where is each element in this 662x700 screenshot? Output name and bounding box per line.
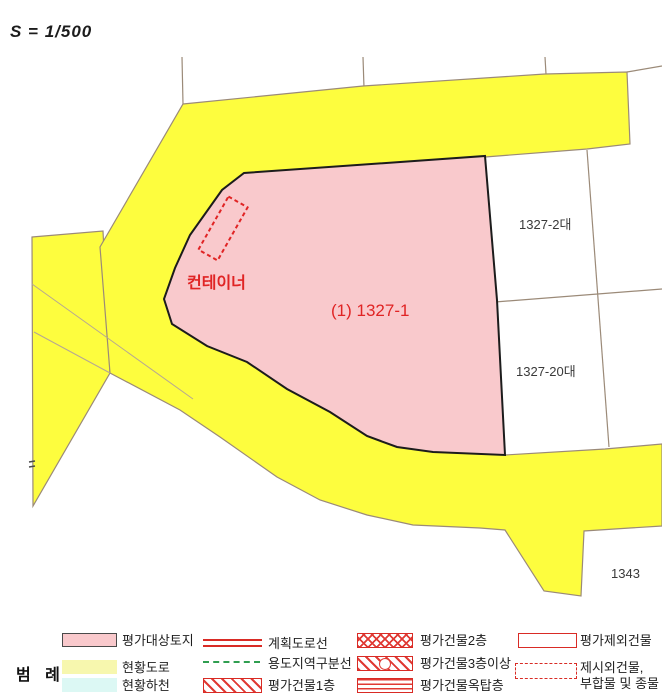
tick-mark bbox=[29, 461, 35, 462]
parcel-20-label: 1327-20대 bbox=[516, 364, 576, 379]
legend-swatch-existing-road bbox=[62, 660, 117, 674]
parcel-line bbox=[495, 289, 662, 302]
legend-label-unlisted-building-line2: 부합물 및 종물 bbox=[580, 676, 659, 691]
legend-swatch-subject-land bbox=[62, 633, 117, 647]
legend-label-excluded-building: 평가제외건물 bbox=[580, 633, 652, 648]
legend-label-building-2f: 평가건물2층 bbox=[420, 633, 487, 648]
subject-parcel-label: (1) 1327-1 bbox=[331, 301, 409, 320]
legend-label-building-1f: 평가건물1층 bbox=[268, 678, 335, 693]
legend-3f-circle-icon bbox=[379, 658, 391, 670]
parcel-1343-label: 1343 bbox=[611, 566, 640, 581]
legend-label-planned-road-line: 계획도로선 bbox=[268, 636, 328, 651]
cadastral-map: 컨테이너 (1) 1327-1 1327-2대 1327-20대 1343 bbox=[0, 0, 662, 622]
parcel-2-label: 1327-2대 bbox=[519, 217, 571, 232]
parcel-line bbox=[545, 57, 546, 74]
legend-symbol-zoning-line bbox=[203, 661, 260, 663]
legend-label-subject-land: 평가대상토지 bbox=[122, 633, 194, 648]
container-label: 컨테이너 bbox=[187, 274, 246, 292]
road-polygon-left-wedge bbox=[32, 231, 110, 506]
tick-mark bbox=[29, 466, 35, 467]
legend-label-building-rooftop: 평가건물옥탑층 bbox=[420, 678, 504, 693]
legend-swatch-existing-river bbox=[62, 678, 117, 692]
legend-swatch-excluded-building bbox=[518, 633, 577, 648]
legend-symbol-planned-road-line bbox=[203, 639, 262, 647]
appraisal-map-page: 컨테이너 (1) 1327-1 1327-2대 1327-20대 1343 S … bbox=[0, 0, 662, 700]
legend-label-unlisted-building-line1: 제시외건물, bbox=[580, 660, 643, 675]
legend-swatch-building-rooftop bbox=[357, 678, 413, 693]
legend-title: 범 례 bbox=[16, 661, 65, 685]
legend-label-zoning-line: 용도지역구분선 bbox=[268, 656, 352, 671]
parcel-line bbox=[627, 66, 662, 72]
map-scale-label: S = 1/500 bbox=[10, 22, 92, 42]
parcel-line bbox=[363, 57, 364, 88]
legend-label-building-3f-up: 평가건물3층이상 bbox=[420, 656, 511, 671]
legend-swatch-building-2f bbox=[357, 633, 413, 648]
legend-swatch-unlisted-building bbox=[515, 663, 577, 679]
legend-swatch-building-3f-up bbox=[357, 656, 413, 671]
legend-label-existing-river: 현황하천 bbox=[122, 678, 170, 693]
parcel-line bbox=[587, 150, 609, 447]
parcel-line bbox=[182, 57, 183, 104]
legend-label-existing-road: 현황도로 bbox=[122, 660, 170, 675]
legend-swatch-building-1f bbox=[203, 678, 262, 693]
